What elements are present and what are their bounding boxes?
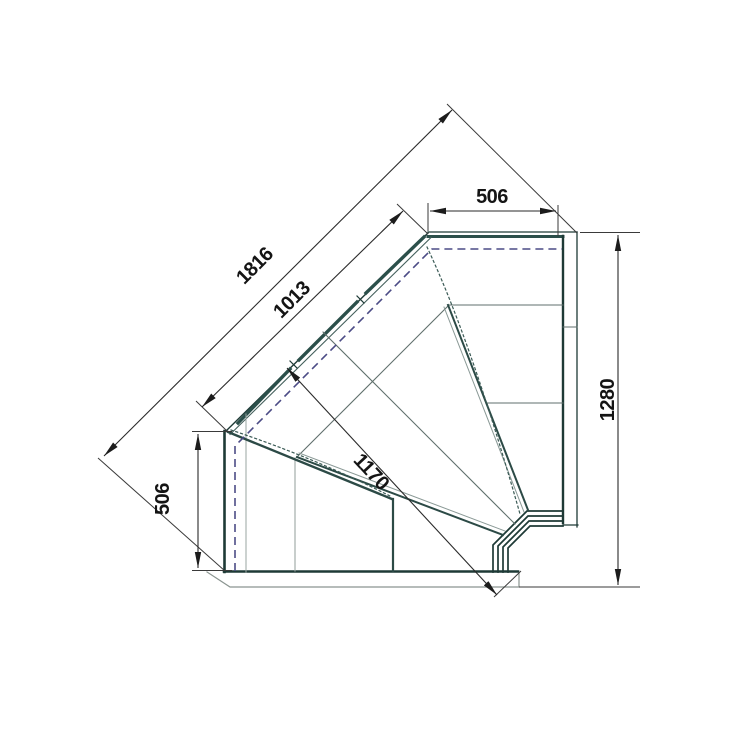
ext-1013-lower — [196, 401, 227, 431]
ext-1013-upper — [397, 204, 428, 234]
fan-line-upper-twin — [444, 307, 524, 512]
dim-label-overall-front: 1816 — [232, 243, 278, 289]
extension-lines — [98, 104, 640, 597]
corner-counter-plan-drawing: 506 1816 1013 1170 506 1280 — [0, 0, 750, 750]
unit-outline — [224, 232, 578, 572]
technical-drawing-canvas: 506 1816 1013 1170 506 1280 — [0, 0, 750, 750]
ext-1170-end — [494, 571, 521, 597]
dim-label-top-width: 506 — [476, 186, 508, 208]
plinth — [207, 572, 519, 587]
fan-miter-bisector — [323, 332, 515, 524]
dim-label-corner-depth: 1170 — [349, 449, 394, 495]
dimensions — [98, 104, 640, 597]
hidden-curve-upper — [427, 247, 520, 514]
ext-1816-upper — [447, 104, 577, 233]
dim-label-glass-front: 1013 — [269, 277, 315, 323]
plinth-outline — [207, 572, 519, 587]
corner-steps — [493, 511, 563, 572]
dim-label-side-length: 1280 — [597, 378, 619, 421]
dim-label-left-depth: 506 — [152, 483, 174, 515]
fan-line-lower-thick — [297, 457, 503, 535]
